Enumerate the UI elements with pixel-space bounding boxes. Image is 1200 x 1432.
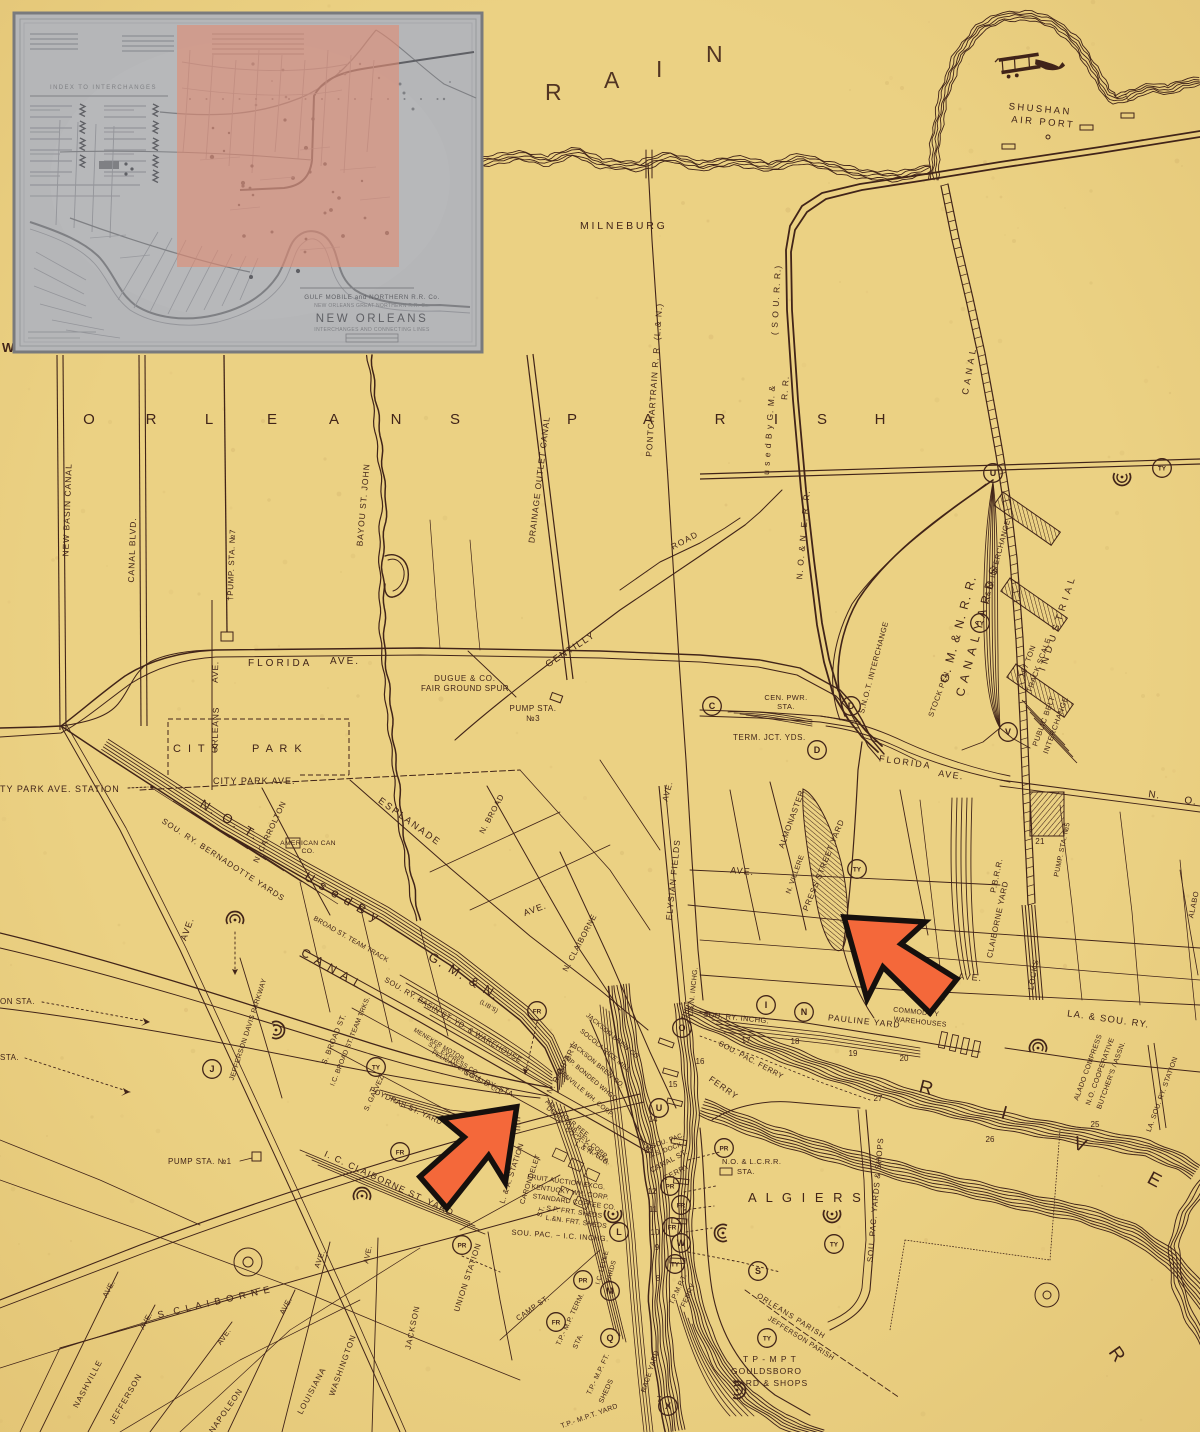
svg-text:STA.: STA.	[737, 1167, 755, 1176]
svg-text:PUMP STA.: PUMP STA.	[510, 704, 557, 713]
svg-text:PR: PR	[720, 1145, 729, 1152]
svg-text:MILNEBURG: MILNEBURG	[580, 220, 668, 232]
svg-text:M: M	[606, 1286, 614, 1296]
svg-text:I: I	[656, 56, 662, 82]
svg-text:S: S	[450, 411, 460, 428]
svg-text:CEN. PWR.: CEN. PWR.	[764, 693, 807, 702]
svg-text:U: U	[990, 468, 997, 478]
svg-text:PR: PR	[458, 1242, 467, 1249]
svg-text:PUMP STA. №1: PUMP STA. №1	[168, 1157, 232, 1166]
svg-text:S: S	[755, 1266, 761, 1276]
svg-text:INDEX TO INTERCHANGES: INDEX TO INTERCHANGES	[50, 85, 157, 91]
svg-text:25: 25	[1091, 1120, 1100, 1129]
svg-text:15: 15	[669, 1080, 678, 1089]
svg-text:P A R K: P A R K	[252, 743, 304, 755]
svg-text:A: A	[604, 67, 620, 93]
svg-text:L: L	[616, 1227, 622, 1237]
svg-text:NEW ORLEANS: NEW ORLEANS	[316, 313, 429, 325]
svg-text:FR: FR	[552, 1319, 561, 1326]
svg-text:H: H	[875, 411, 886, 428]
svg-text:C: C	[709, 701, 716, 711]
svg-text:AVE.: AVE.	[210, 661, 221, 683]
svg-text:R: R	[715, 411, 726, 428]
svg-text:FLORIDA: FLORIDA	[248, 658, 312, 669]
svg-text:STA.: STA.	[0, 1053, 19, 1062]
svg-text:12: 12	[648, 1187, 657, 1196]
svg-text:CITY PARK AVE.: CITY PARK AVE.	[213, 776, 296, 786]
svg-text:PR: PR	[579, 1277, 588, 1284]
svg-text:U: U	[656, 1103, 663, 1113]
svg-text:O: O	[83, 411, 95, 428]
svg-text:V: V	[1005, 727, 1011, 737]
svg-text:FR: FR	[533, 1008, 542, 1015]
svg-text:O: O	[678, 1023, 685, 1033]
svg-text:STA.: STA.	[777, 702, 795, 711]
svg-text:DUGUE & CO.: DUGUE & CO.	[434, 674, 496, 683]
svg-text:17: 17	[742, 1036, 751, 1045]
svg-text:8: 8	[656, 1274, 661, 1283]
svg-text:T P - M P T: T P - M P T	[743, 1354, 797, 1364]
svg-text:ON STA.: ON STA.	[0, 997, 35, 1006]
svg-text:N.O. & L.C.R.R.: N.O. & L.C.R.R.	[722, 1157, 781, 1166]
svg-text:TY: TY	[976, 620, 985, 627]
svg-text:L: L	[205, 411, 213, 428]
svg-text:NEW ORLEANS GREAT NORTHERN R.R: NEW ORLEANS GREAT NORTHERN R.R. Co.	[314, 303, 430, 309]
svg-text:21: 21	[1035, 837, 1045, 846]
svg-text:FR: FR	[677, 1202, 686, 1209]
svg-text:TY: TY	[830, 1241, 839, 1248]
svg-text:PR: PR	[666, 1183, 675, 1190]
svg-text:CO.: CO.	[302, 848, 315, 855]
svg-text:INTERCHANGES AND CONNECTING LI: INTERCHANGES AND CONNECTING LINES	[314, 327, 430, 333]
svg-text:A: A	[329, 411, 339, 428]
svg-text:N: N	[706, 41, 723, 67]
svg-text:AVE.: AVE.	[330, 656, 360, 667]
svg-text:A: A	[643, 411, 653, 428]
svg-text:FR: FR	[668, 1224, 677, 1231]
svg-text:R. R.: R. R.	[779, 375, 791, 400]
svg-text:20: 20	[900, 1054, 909, 1063]
svg-text:GULF MOBILE and NORTHERN R.R.: GULF MOBILE and NORTHERN R.R. Co.	[304, 294, 440, 301]
svg-text:D: D	[848, 701, 855, 711]
svg-text:Q: Q	[606, 1333, 613, 1343]
svg-text:№3: №3	[526, 714, 540, 723]
svg-text:D: D	[814, 745, 821, 755]
svg-text:TY: TY	[671, 1261, 680, 1268]
svg-text:E: E	[267, 411, 277, 428]
svg-text:TY: TY	[1158, 465, 1167, 472]
svg-text:ORLEANS: ORLEANS	[209, 707, 221, 754]
svg-text:P: P	[567, 411, 577, 428]
svg-text:FR: FR	[396, 1149, 405, 1156]
svg-text:I: I	[765, 1000, 768, 1010]
svg-text:9: 9	[655, 1243, 660, 1252]
svg-text:16: 16	[696, 1057, 705, 1066]
svg-text:18: 18	[791, 1037, 800, 1046]
svg-text:N.: N.	[1148, 789, 1161, 802]
svg-text:N: N	[801, 1007, 808, 1017]
svg-text:A L G I E R S: A L G I E R S	[748, 1190, 864, 1205]
svg-text:AVE.: AVE.	[730, 865, 755, 877]
svg-text:GOULDSBORO: GOULDSBORO	[731, 1366, 802, 1376]
svg-text:N: N	[391, 411, 402, 428]
svg-text:19: 19	[849, 1049, 858, 1058]
svg-text:26: 26	[986, 1135, 995, 1144]
svg-text:O.: O.	[1184, 795, 1198, 808]
svg-text:TY: TY	[853, 866, 862, 873]
svg-text:10: 10	[651, 1228, 660, 1237]
svg-text:X: X	[665, 1401, 671, 1411]
svg-text:TERM. JCT. YDS.: TERM. JCT. YDS.	[733, 733, 806, 742]
svg-text:AMERICAN CAN: AMERICAN CAN	[280, 840, 336, 847]
svg-text:I: I	[774, 411, 778, 428]
svg-text:FAIR GROUND SPUR: FAIR GROUND SPUR	[421, 684, 509, 693]
svg-text:27: 27	[874, 1094, 883, 1103]
svg-text:R: R	[545, 79, 562, 105]
svg-text:11: 11	[649, 1205, 658, 1214]
svg-text:W: W	[677, 1238, 686, 1248]
svg-text:TY: TY	[763, 1335, 772, 1342]
svg-text:J: J	[209, 1064, 214, 1074]
svg-text:S: S	[817, 411, 827, 428]
svg-text:TY: TY	[372, 1064, 381, 1071]
svg-text:R: R	[146, 411, 157, 428]
